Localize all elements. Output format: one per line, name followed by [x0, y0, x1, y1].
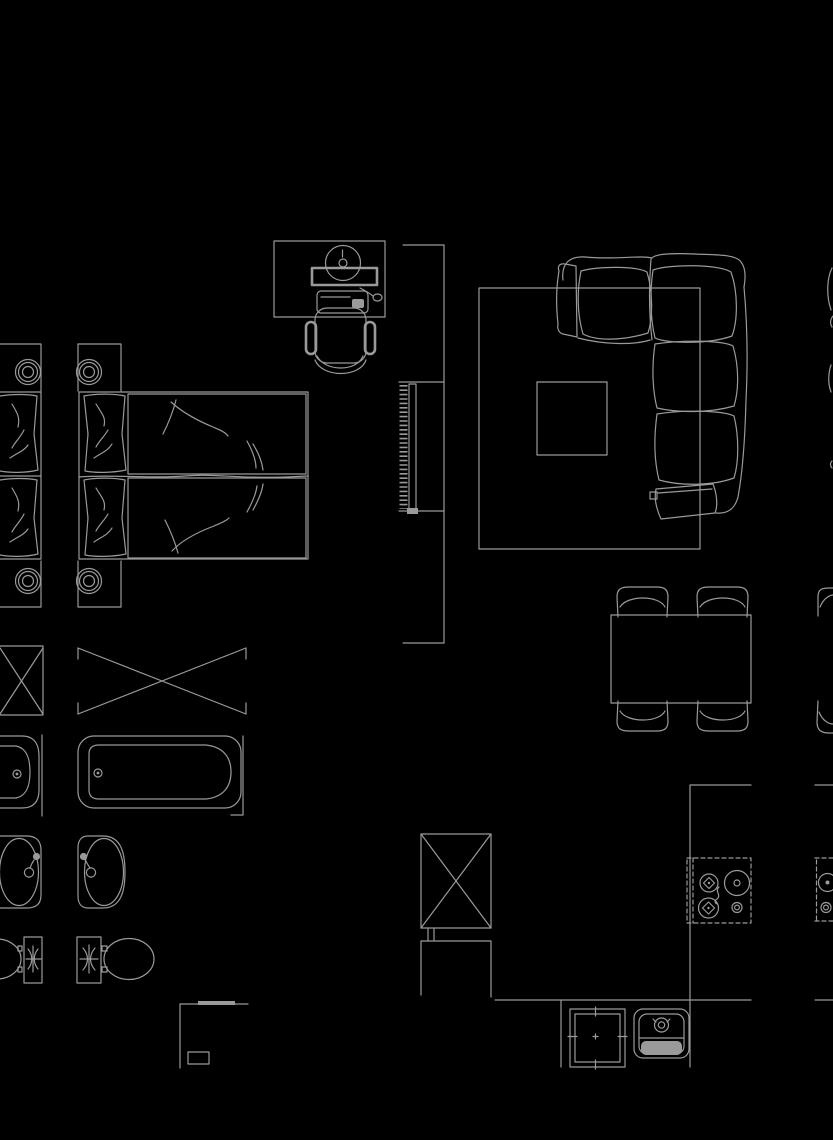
pillow	[0, 395, 38, 473]
monitor-screen-bar	[312, 268, 377, 285]
centerline-marks	[568, 1007, 627, 1069]
room-corner-block[interactable]	[180, 1001, 248, 1068]
faucet-icon	[80, 853, 96, 877]
pillow-wrinkles	[10, 404, 28, 458]
cross-lines	[421, 834, 491, 928]
tub-inner-rim	[0, 746, 30, 798]
cad-canvas[interactable]	[0, 0, 833, 1140]
duvet-folds	[163, 400, 263, 470]
cross-lines	[78, 648, 246, 714]
wall-lines	[180, 1004, 248, 1068]
oven-block[interactable]	[568, 1007, 627, 1069]
pillow	[84, 478, 126, 556]
radiator-foot	[407, 508, 418, 514]
counter-lines	[495, 785, 833, 1067]
bed-divider	[79, 475, 308, 477]
dining-chair	[818, 588, 833, 616]
partial-toilet-block[interactable]	[0, 937, 42, 983]
rug	[479, 288, 700, 549]
side-panels	[421, 941, 491, 997]
double-bed-block[interactable]	[77, 344, 309, 607]
partial-shower-box-block[interactable]	[0, 646, 43, 715]
coffee-table	[537, 382, 607, 455]
cooktop-block[interactable]	[687, 858, 751, 923]
shower-box-block[interactable]	[78, 648, 246, 714]
wall-thick-segment	[198, 1001, 235, 1005]
drainboard	[641, 1041, 682, 1055]
radiator-body	[409, 384, 416, 509]
pillow-wrinkles	[94, 404, 112, 458]
toilet-bowl	[0, 939, 21, 979]
kitchen-counter-block[interactable]	[495, 785, 833, 1067]
cooktop-outline	[687, 858, 751, 923]
burner-icon	[700, 874, 718, 892]
dining-set-block[interactable]	[611, 587, 751, 731]
partial-cooktop-block[interactable]	[815, 858, 833, 921]
burner-icon	[821, 903, 831, 913]
drain-dot	[16, 773, 19, 776]
partial-sofa-block[interactable]	[828, 268, 833, 468]
duvet-top	[128, 394, 306, 474]
duvet-folds	[165, 484, 263, 553]
radiator-cabinet-block[interactable]	[399, 245, 444, 643]
sectional-sofa	[557, 254, 747, 519]
burner-icon	[732, 903, 742, 913]
flush-valve-icon	[26, 946, 41, 972]
plinth-band	[421, 929, 491, 941]
toilet-block[interactable]	[77, 937, 154, 983]
pillow	[84, 394, 126, 472]
sofa-slivers	[828, 268, 833, 468]
mouse-icon	[360, 288, 382, 301]
bedside-lamp-icon	[77, 569, 102, 594]
partial-dining-block[interactable]	[817, 588, 833, 733]
drain-dot	[97, 772, 100, 775]
kitchen-sink-block[interactable]	[634, 1009, 689, 1058]
dining-chair	[617, 587, 668, 617]
burner-icon	[819, 874, 833, 892]
sofa-rug-block[interactable]	[479, 254, 747, 549]
desk-workstation-block[interactable]	[274, 241, 385, 374]
partial-bathtub-block[interactable]	[0, 735, 42, 816]
bedside-lamp-icon	[77, 360, 102, 385]
bedside-lamp-icon	[16, 569, 41, 594]
faucet-icon	[653, 1018, 670, 1032]
bedside-lamp-icon	[16, 360, 41, 385]
basin-bowl	[0, 839, 39, 906]
flush-valve-icon	[80, 945, 98, 973]
oven-inner	[575, 1014, 620, 1062]
office-chair	[306, 308, 375, 374]
oven-outer	[570, 1009, 625, 1067]
tall-cabinet-block[interactable]	[421, 834, 491, 997]
toilet-bowl	[104, 939, 154, 980]
bathtub-block[interactable]	[78, 736, 243, 815]
monitor-icon	[326, 246, 361, 281]
pillow-wrinkles	[10, 488, 28, 542]
partial-bed-block[interactable]	[0, 344, 41, 607]
socket-box	[188, 1052, 209, 1064]
washbasin-block[interactable]	[78, 836, 125, 908]
dining-chair	[817, 701, 833, 733]
duvet-bottom	[128, 478, 306, 558]
dining-chair	[617, 701, 668, 731]
dining-chair	[697, 587, 748, 617]
pillow	[0, 479, 38, 557]
dining-chair	[697, 701, 748, 731]
cross-lines	[0, 648, 43, 714]
floorplan-drawing	[0, 0, 833, 1140]
headboard-bracket-top	[0, 344, 41, 391]
tub-inner-rim	[89, 745, 231, 799]
dining-table	[611, 615, 751, 703]
basin-bowl	[85, 839, 124, 906]
headboard-bracket-bottom	[0, 561, 41, 607]
partial-washbasin-block[interactable]	[0, 836, 41, 908]
pillow-wrinkles	[94, 488, 112, 542]
burner-icon	[725, 871, 750, 896]
